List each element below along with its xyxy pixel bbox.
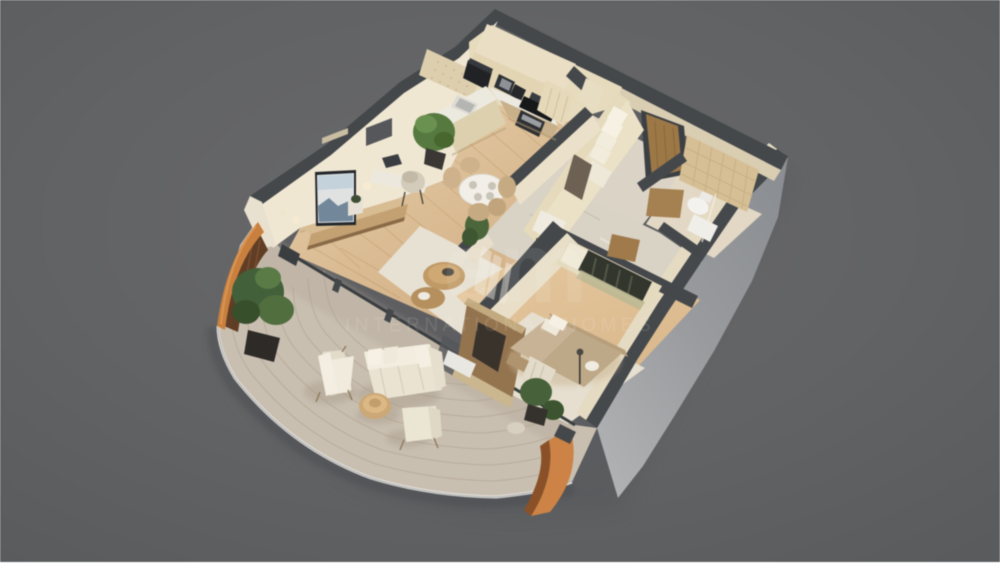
svg-text:em: em [443, 212, 588, 324]
svg-text:INTERNATIONAL HOMES: INTERNATIONAL HOMES [345, 315, 655, 336]
